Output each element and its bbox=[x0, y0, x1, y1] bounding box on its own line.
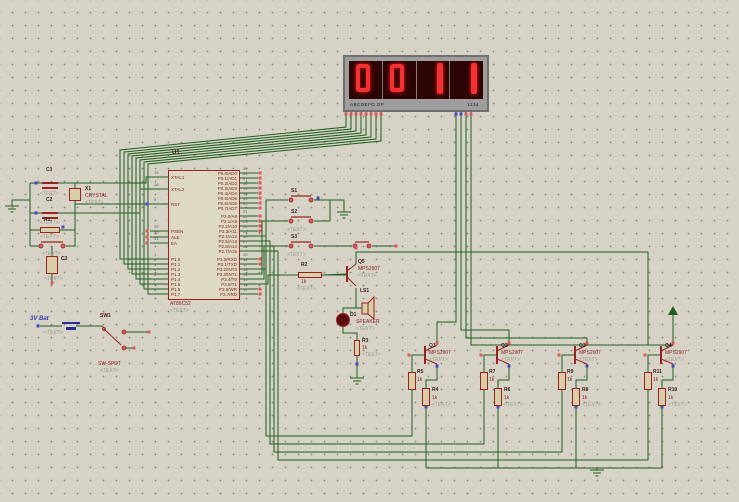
mcu-value-label: AT89C52 bbox=[170, 302, 191, 307]
resistor-R4[interactable] bbox=[422, 388, 430, 406]
button-s2-ref-label: S2 bbox=[291, 210, 297, 215]
resistor-placeholder: <TEXT> bbox=[668, 403, 687, 408]
resistor-value-label: 1k bbox=[582, 396, 587, 401]
speaker-ls1-placeholder: <TEXT> bbox=[356, 327, 375, 332]
pin-label-RST: RST bbox=[171, 203, 180, 208]
speaker-ls1-ref-label: LS1 bbox=[360, 289, 369, 294]
switch-sw1-value-label: SW-SPDT bbox=[98, 362, 121, 367]
led-d1-ref-label: D1 bbox=[350, 313, 356, 318]
resistor-r2-ref-label: R2 bbox=[301, 263, 307, 268]
display-digit bbox=[383, 61, 417, 99]
pin-number: 19 bbox=[154, 171, 158, 175]
pin-label-P0.7/AD7: P0.7/AD7 bbox=[218, 207, 237, 212]
resistor-R7[interactable] bbox=[480, 372, 488, 390]
pin-label-ALE: ALE bbox=[171, 236, 180, 241]
button-s3-placeholder: <TEXT> bbox=[287, 253, 306, 258]
resistor-ref-label: R4 bbox=[432, 388, 438, 393]
transistor-ref-label: Q4 bbox=[665, 344, 672, 349]
display-segment-pins-label: ABCDEFG DP bbox=[350, 103, 384, 108]
button-s2-placeholder: <TEXT> bbox=[287, 228, 306, 233]
resistor-placeholder: <TEXT> bbox=[432, 403, 451, 408]
transistor-value-label: MPS2907 bbox=[429, 351, 451, 356]
resistor-R5[interactable] bbox=[408, 372, 416, 390]
seven-segment-display[interactable]: ABCDEFG DP 1234 bbox=[343, 55, 489, 112]
resistor-R10[interactable] bbox=[658, 388, 666, 406]
cap-c1-ref-label: C1 bbox=[46, 168, 52, 173]
resistor-value-label: 1k bbox=[653, 378, 658, 383]
pin-label-EA: EA bbox=[171, 242, 177, 247]
resistor-ref-label: R10 bbox=[668, 388, 677, 393]
pin-number: 31 bbox=[154, 237, 158, 241]
resistor-r3-value-label: 1k bbox=[362, 346, 367, 351]
cap-c3-placeholder: <TEXT> bbox=[44, 277, 63, 282]
pin-label-XTAL2: XTAL2 bbox=[171, 188, 184, 193]
display-digit bbox=[349, 61, 383, 99]
transistor-value-label: MPS2907 bbox=[579, 351, 601, 356]
led-d1[interactable] bbox=[336, 313, 350, 327]
digit-glyph-1 bbox=[437, 63, 443, 94]
resistor-r1-ref-label: R1 bbox=[44, 218, 50, 223]
resistor-ref-label: R5 bbox=[417, 370, 423, 375]
resistor-ref-label: R6 bbox=[504, 388, 510, 393]
resistor-r3-placeholder: <TEXT> bbox=[362, 353, 381, 358]
battery-label: 3V Bat bbox=[30, 316, 49, 322]
transistor-ref-label: Q1 bbox=[429, 344, 436, 349]
resistor-r2-placeholder: <TEXT> bbox=[297, 287, 316, 292]
transistor-value-label: MPS2907 bbox=[501, 351, 523, 356]
transistor-ref-label: Q3 bbox=[579, 344, 586, 349]
mcu-8051[interactable]: XTAL1XTAL2RSTPSENALEEAP1.0P1.1P1.2P1.3P1… bbox=[168, 170, 240, 300]
resistor-r2[interactable] bbox=[298, 272, 322, 278]
resistor-value-label: 1k bbox=[489, 378, 494, 383]
display-screen bbox=[349, 61, 483, 99]
resistor-r1-placeholder: <TEXT> bbox=[40, 235, 59, 240]
battery-plate[interactable] bbox=[66, 327, 76, 330]
switch-sw1-ref-label: SW1 bbox=[100, 314, 111, 319]
digit-glyph-0 bbox=[356, 64, 370, 92]
resistor-value-label: 1k bbox=[504, 396, 509, 401]
resistor-r3-ref-label: R3 bbox=[362, 339, 368, 344]
cap-c1-plate[interactable] bbox=[42, 182, 58, 184]
resistor-r3[interactable] bbox=[354, 340, 360, 356]
display-digit bbox=[417, 61, 451, 99]
resistor-placeholder: <TEXT> bbox=[582, 403, 601, 408]
crystal-placeholder: <TEXT> bbox=[85, 201, 104, 206]
switch-sw1-placeholder: <TEXT> bbox=[100, 369, 119, 374]
cap-c2-ref-label: C2 bbox=[46, 198, 52, 203]
resistor-ref-label: R8 bbox=[582, 388, 588, 393]
transistor-ref-label: Q2 bbox=[501, 344, 508, 349]
resistor-R9[interactable] bbox=[558, 372, 566, 390]
transistor-value-label: MPS2907 bbox=[665, 351, 687, 356]
button-s3-ref-label: S3 bbox=[291, 235, 297, 240]
resistor-R11[interactable] bbox=[644, 372, 652, 390]
pin-number: 30 bbox=[154, 231, 158, 235]
resistor-value-label: 1k bbox=[432, 396, 437, 401]
battery-plate[interactable] bbox=[62, 322, 80, 324]
crystal-x1[interactable] bbox=[69, 188, 81, 201]
transistor-q5-ref-label: Q5 bbox=[358, 260, 365, 265]
cap-c2-plate[interactable] bbox=[42, 212, 58, 214]
resistor-value-label: 1k bbox=[567, 378, 572, 383]
pin-label-XTAL1: XTAL1 bbox=[171, 176, 184, 181]
pin-label-P1.7: P1.7 bbox=[171, 293, 180, 298]
transistor-placeholder: <TEXT> bbox=[665, 358, 684, 363]
schematic-canvas[interactable]: ABCDEFG DP 1234 XTAL1XTAL2RSTPSENALEEAP1… bbox=[0, 0, 739, 502]
mcu-placeholder-label: <TEXT> bbox=[170, 309, 189, 314]
button-s1-ref-label: S1 bbox=[291, 189, 297, 194]
cap-c1-plate[interactable] bbox=[42, 187, 58, 189]
transistor-placeholder: <TEXT> bbox=[429, 358, 448, 363]
mcu-ref-label: U1 bbox=[172, 150, 180, 156]
pin-number: 28 bbox=[243, 245, 247, 249]
resistor-value-label: 1k bbox=[668, 396, 673, 401]
pin-number: 17 bbox=[243, 288, 247, 292]
resistor-r2-value-label: 1k bbox=[301, 280, 306, 285]
pin-number: 9 bbox=[154, 198, 156, 202]
display-digit-pins-label: 1234 bbox=[467, 103, 479, 108]
cap-c3-ref-label: C3 bbox=[61, 257, 67, 262]
pin-number: 18 bbox=[154, 183, 158, 187]
transistor-placeholder: <TEXT> bbox=[579, 358, 598, 363]
transistor-q5-value-label: MPS2907 bbox=[358, 267, 380, 272]
resistor-value-label: 1k bbox=[417, 378, 422, 383]
speaker-ls1-value-label: SPEAKER bbox=[356, 320, 380, 325]
pin-number: 32 bbox=[243, 202, 247, 206]
pin-number: 29 bbox=[154, 225, 158, 229]
display-digit bbox=[450, 61, 483, 99]
crystal-ref-label: X1 bbox=[85, 187, 91, 192]
battery-placeholder: <TEXT> bbox=[44, 331, 63, 336]
resistor-ref-label: R7 bbox=[489, 370, 495, 375]
digit-glyph-1 bbox=[471, 63, 477, 94]
pin-label-PSEN: PSEN bbox=[171, 230, 183, 235]
pin-label-P3.7/RD: P3.7/RD bbox=[220, 293, 237, 298]
resistor-r1[interactable] bbox=[40, 227, 60, 233]
resistor-ref-label: R9 bbox=[567, 370, 573, 375]
resistor-ref-label: R11 bbox=[653, 370, 662, 375]
resistor-R6[interactable] bbox=[494, 388, 502, 406]
resistor-R8[interactable] bbox=[572, 388, 580, 406]
cap-c3-electrolytic[interactable] bbox=[46, 256, 58, 274]
pin-number: 8 bbox=[154, 288, 156, 292]
digit-glyph-0 bbox=[390, 64, 404, 92]
pin-label-P2.7/A15: P2.7/A15 bbox=[218, 250, 237, 255]
resistor-placeholder: <TEXT> bbox=[504, 403, 523, 408]
crystal-value-label: CRYSTAL bbox=[85, 194, 108, 199]
transistor-placeholder: <TEXT> bbox=[501, 358, 520, 363]
transistor-q5-placeholder: <TEXT> bbox=[358, 274, 377, 279]
